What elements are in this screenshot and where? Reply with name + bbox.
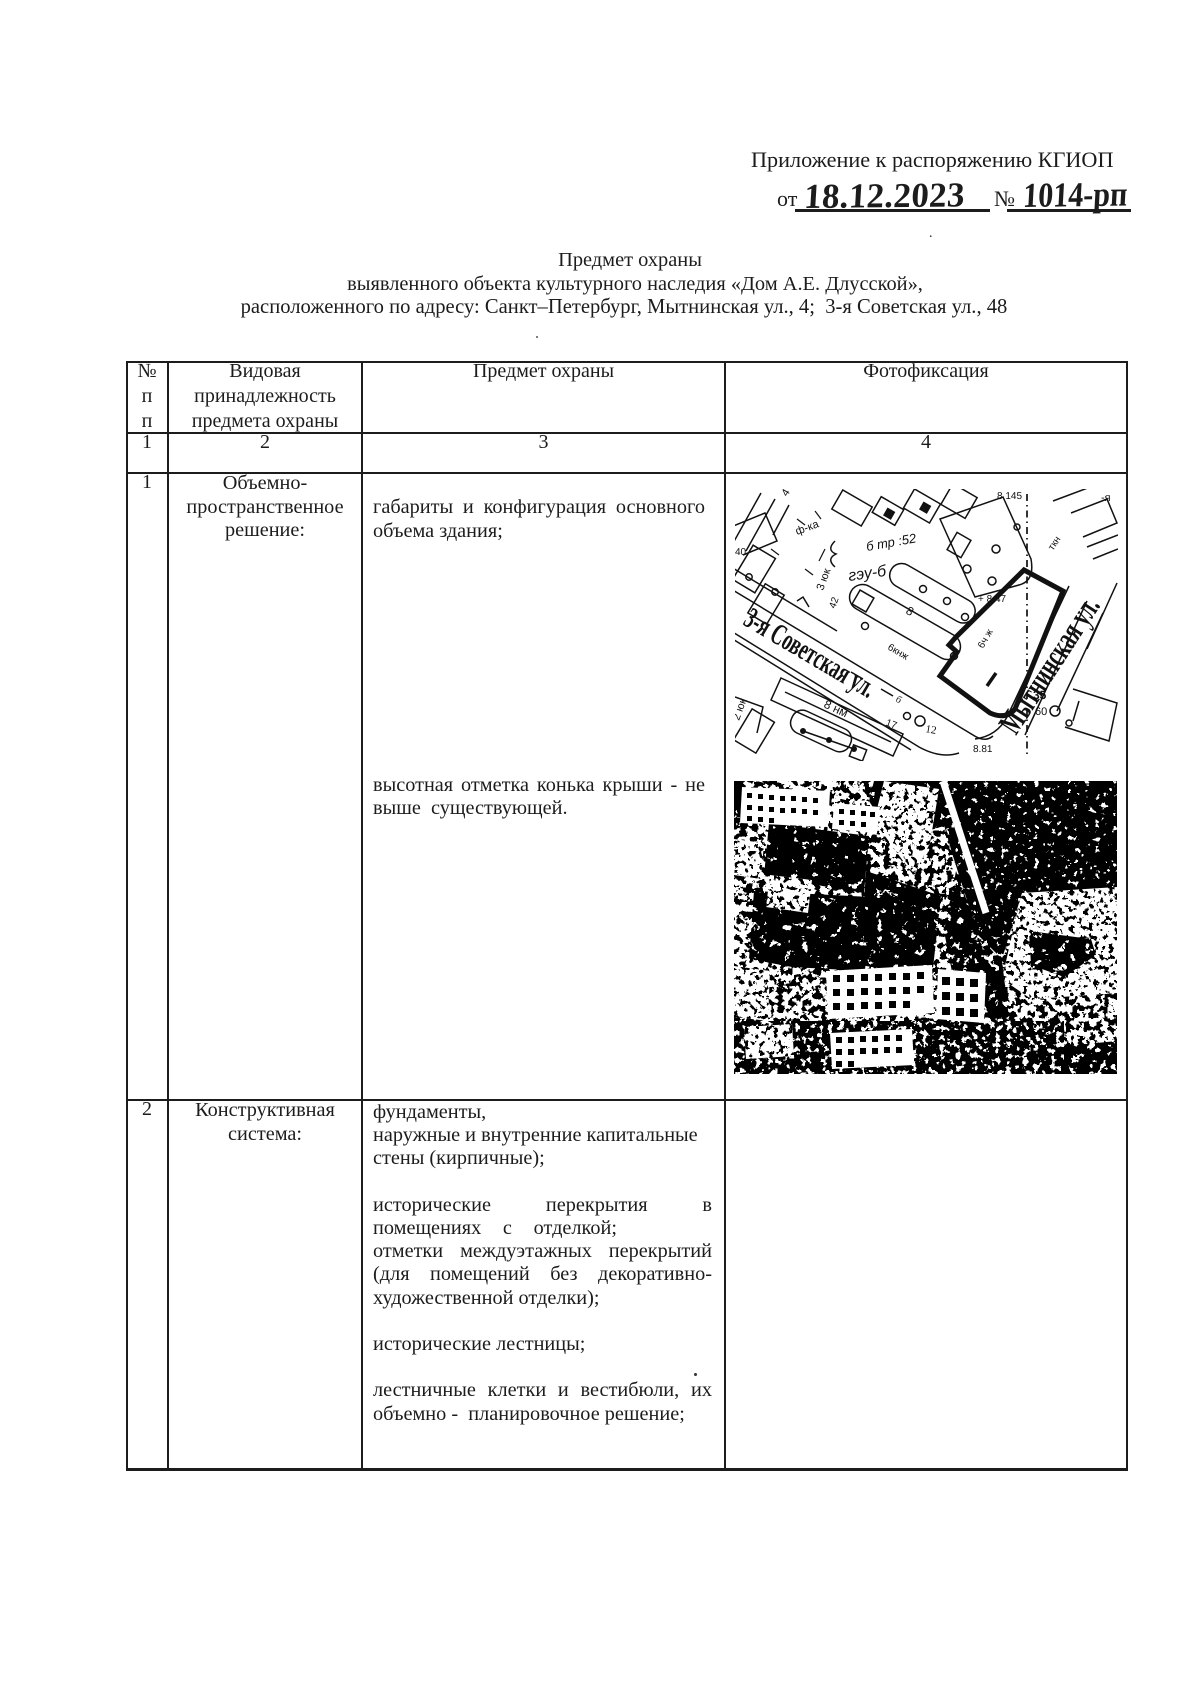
svg-text:12: 12 (924, 723, 937, 737)
svg-text:8: 8 (904, 603, 917, 619)
svg-text:3-я Советская ул.: 3-я Советская ул. (738, 602, 881, 705)
svg-text:17: 17 (884, 718, 899, 732)
svg-text:гэу-б: гэу-б (847, 563, 888, 585)
svg-text:б тр :52: б тр :52 (865, 530, 918, 554)
svg-text:6кнж: 6кнж (886, 642, 911, 663)
svg-text:42: 42 (827, 595, 841, 610)
svg-text:4 Ю: 4 Ю (779, 489, 800, 499)
svg-text:60: 60 (1035, 706, 1047, 718)
svg-text:б: б (894, 694, 904, 706)
svg-text:35: 35 (1033, 688, 1047, 702)
svg-text:Мытнинская ул.: Мытнинская ул. (992, 590, 1107, 740)
svg-text:40: 40 (735, 547, 747, 558)
svg-text:6ч ж: 6ч ж (976, 627, 996, 650)
svg-text:3 юк: 3 юк (815, 567, 834, 592)
svg-text:8.81: 8.81 (973, 744, 993, 755)
svg-text:+ 8.47: + 8.47 (978, 594, 1007, 605)
svg-text:ткн: ткн (1046, 534, 1063, 552)
svg-text:8.145: 8.145 (997, 491, 1022, 502)
svg-text:-я: -я (1101, 492, 1111, 504)
svg-text:ф-ка: ф-ка (794, 518, 821, 538)
